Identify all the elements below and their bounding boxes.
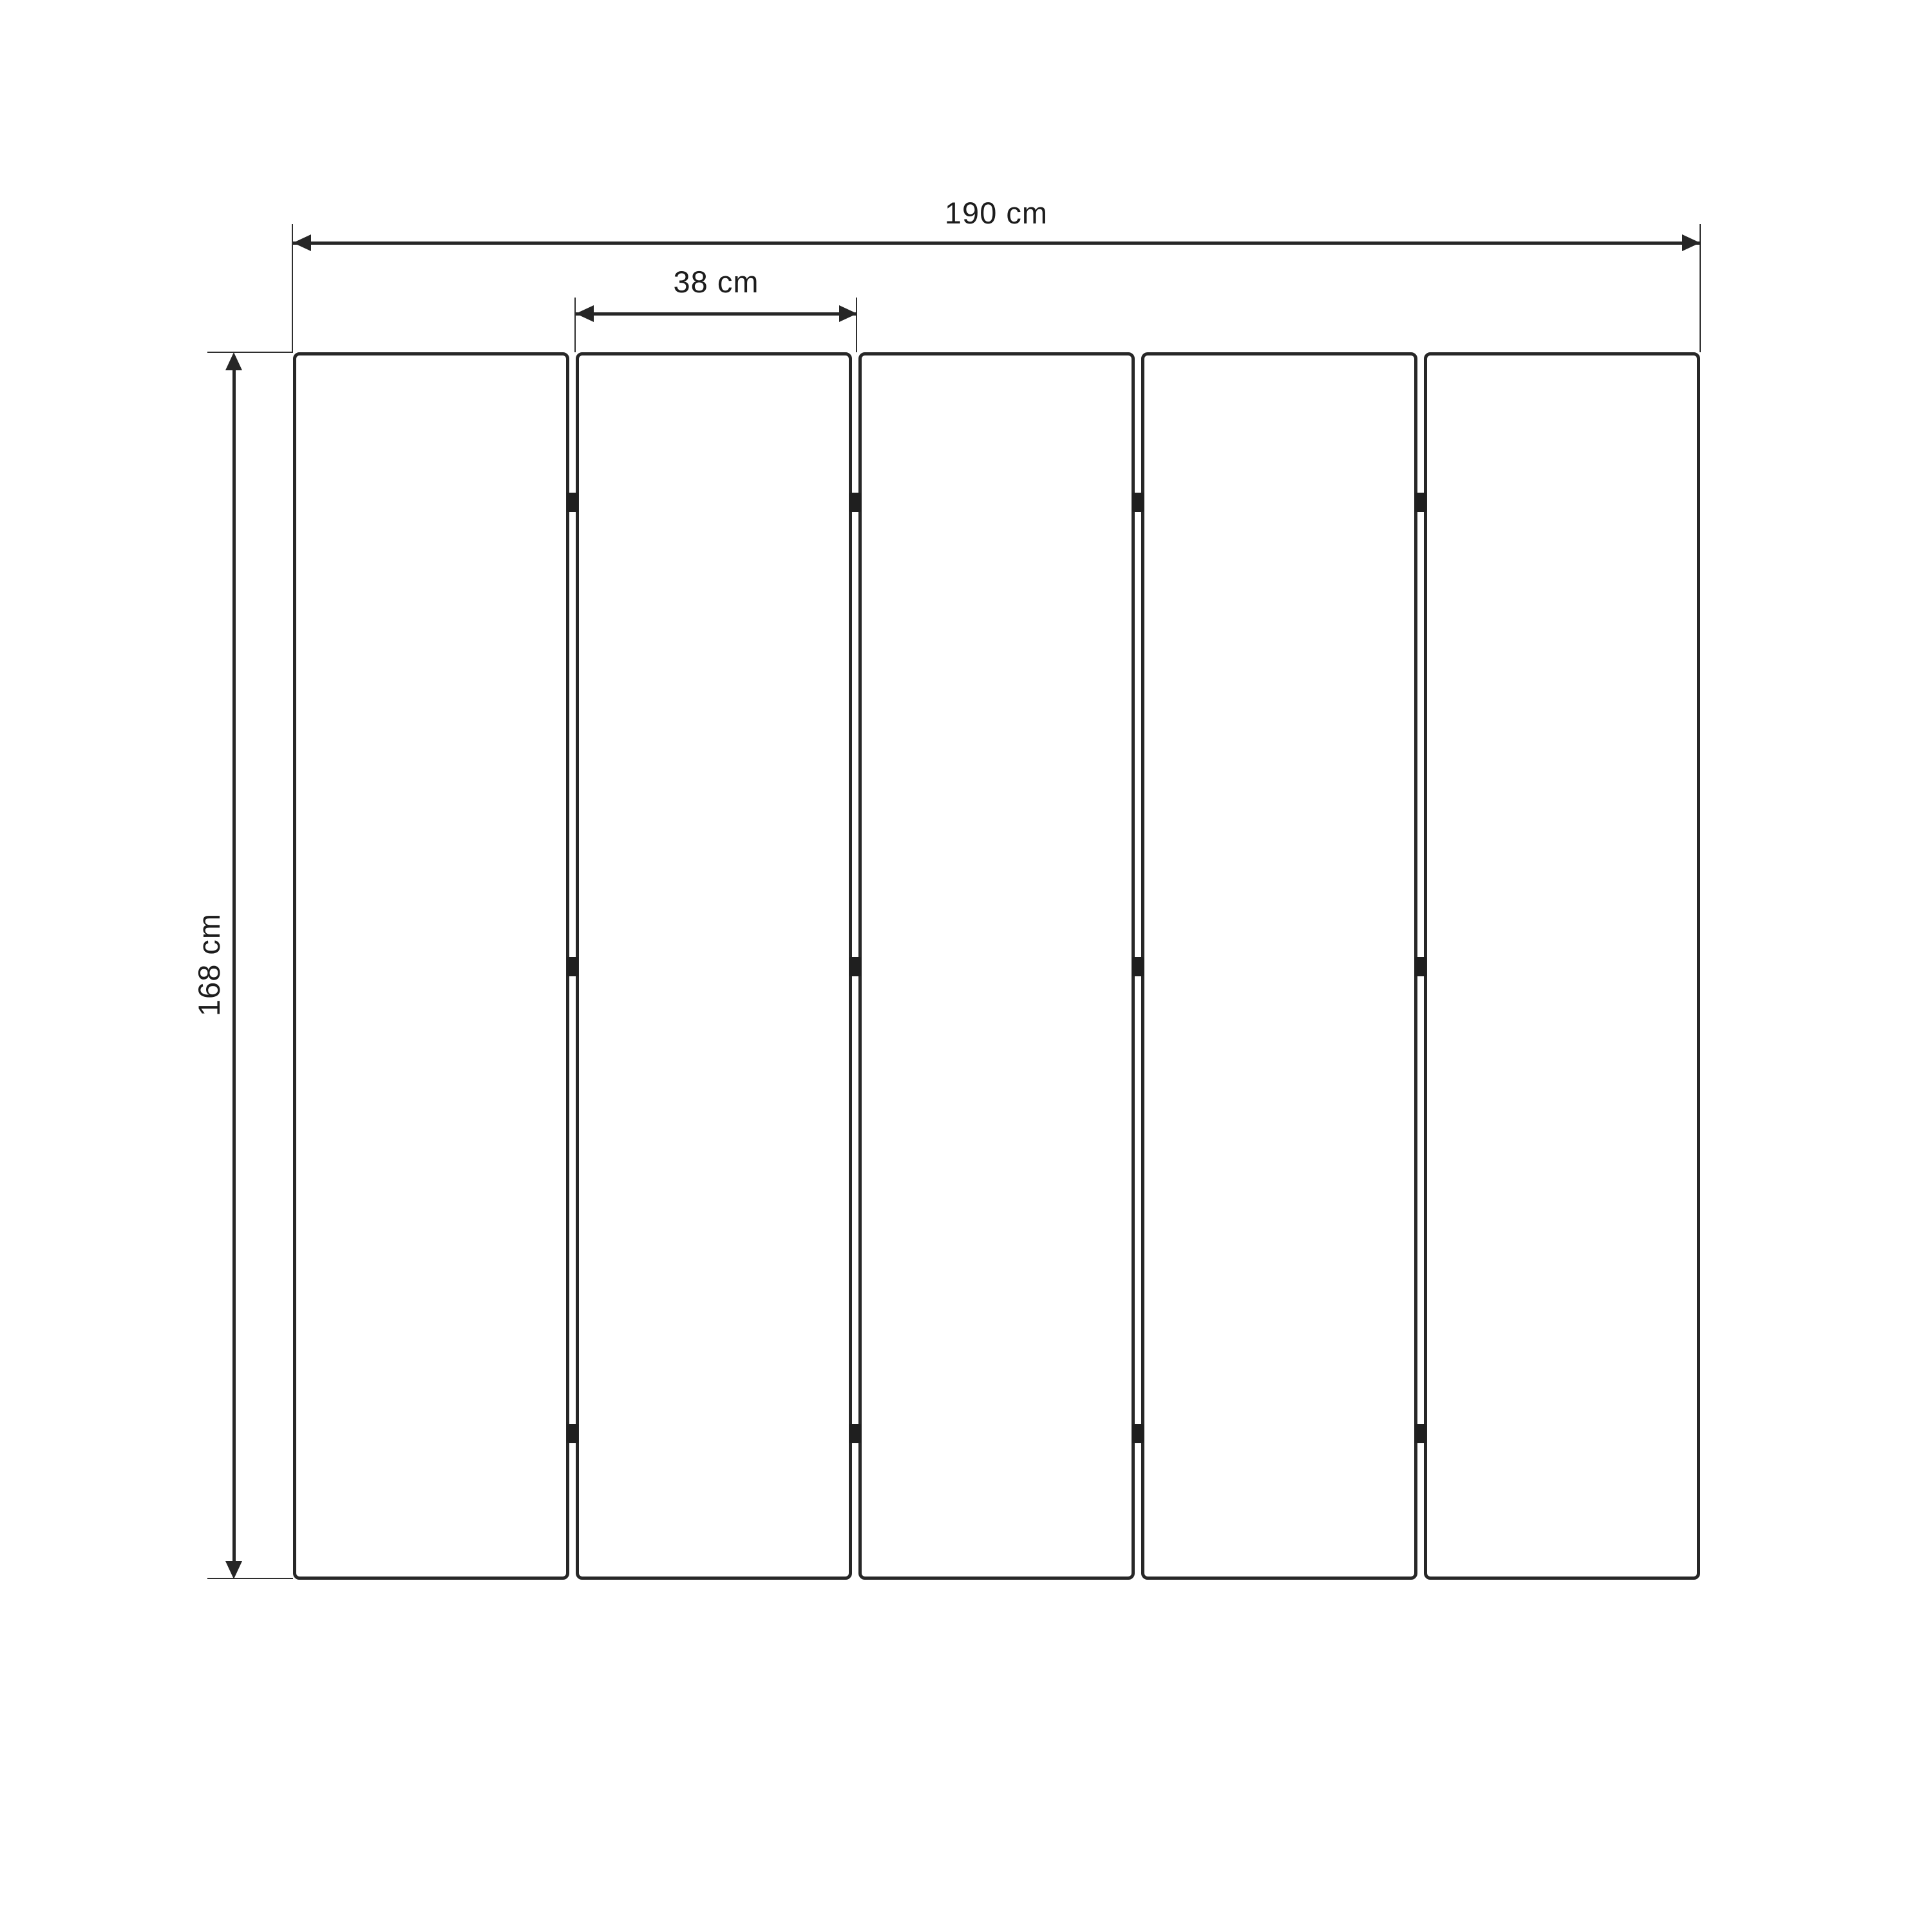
- panel-width-dimension-label: 38 cm: [555, 264, 877, 300]
- hinge-mark: [1415, 957, 1426, 976]
- hinge-mark: [567, 493, 578, 512]
- height-extension-line-bottom: [207, 1578, 293, 1579]
- dimension-drawing: 190 cm 38 cm 168 cm: [0, 0, 1932, 1932]
- hinge-mark: [849, 957, 861, 976]
- height-dimension-line: [232, 361, 236, 1571]
- panel-width-dimension-line: [576, 312, 857, 316]
- arrowhead-right-icon: [1682, 234, 1700, 251]
- hinge-mark: [849, 493, 861, 512]
- hinge-mark: [567, 957, 578, 976]
- arrowhead-right-icon: [839, 305, 857, 322]
- hinge-mark: [1415, 493, 1426, 512]
- hinge-mark: [567, 1424, 578, 1443]
- arrowhead-left-icon: [576, 305, 594, 322]
- screen-panel-5: [1424, 352, 1700, 1580]
- screen-panel-1: [293, 352, 569, 1580]
- width-dimension-line: [293, 241, 1700, 245]
- height-extension-line-top: [207, 352, 293, 353]
- hinge-mark: [1415, 1424, 1426, 1443]
- arrowhead-down-icon: [225, 1561, 242, 1579]
- hinge-mark: [1132, 957, 1144, 976]
- hinge-mark: [1132, 1424, 1144, 1443]
- hinge-mark: [849, 1424, 861, 1443]
- screen-panel-3: [858, 352, 1135, 1580]
- hinge-mark: [1132, 493, 1144, 512]
- arrowhead-left-icon: [293, 234, 311, 251]
- height-dimension-label: 168 cm: [191, 804, 227, 1126]
- width-dimension-label: 190 cm: [835, 195, 1157, 231]
- arrowhead-up-icon: [225, 352, 242, 370]
- screen-panel-2: [576, 352, 852, 1580]
- screen-panel-4: [1141, 352, 1417, 1580]
